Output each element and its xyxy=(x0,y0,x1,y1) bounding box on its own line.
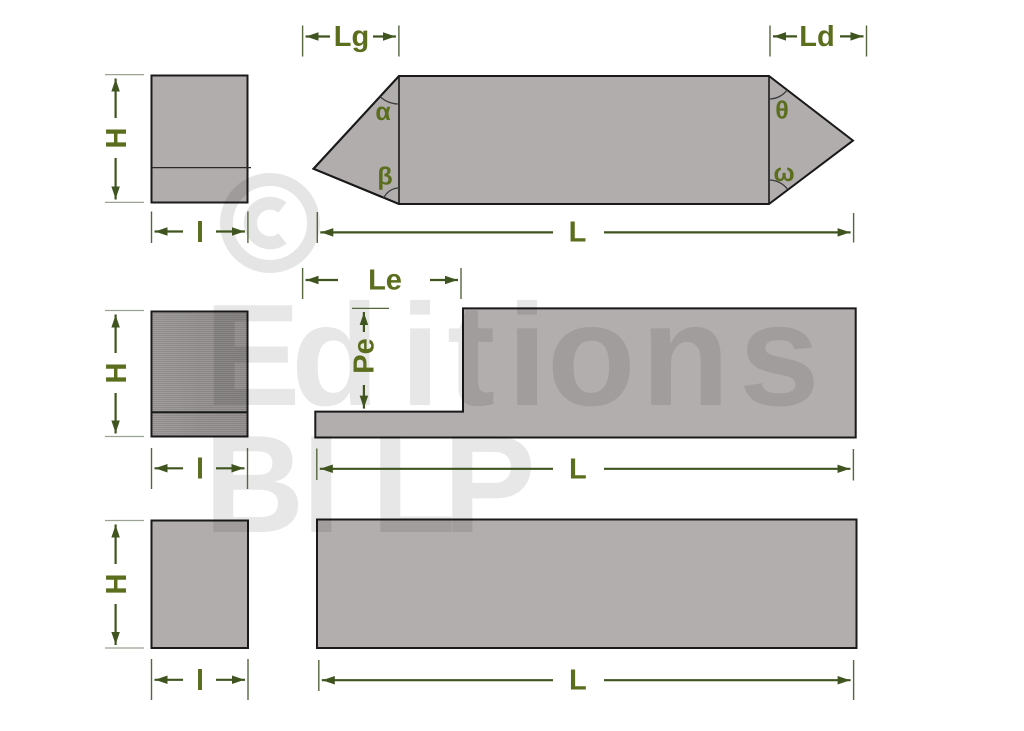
svg-text:l: l xyxy=(196,454,204,486)
svg-text:l: l xyxy=(196,217,204,249)
svg-text:θ: θ xyxy=(775,97,789,125)
svg-text:Lg: Lg xyxy=(334,21,369,53)
svg-text:Ld: Ld xyxy=(799,21,834,53)
svg-text:Pe: Pe xyxy=(349,338,381,373)
svg-text:H: H xyxy=(101,574,133,595)
svg-text:Le: Le xyxy=(368,265,402,297)
svg-text:α: α xyxy=(375,98,391,126)
svg-text:ω: ω xyxy=(773,159,794,187)
svg-text:L: L xyxy=(569,665,587,697)
svg-text:H: H xyxy=(101,363,133,384)
svg-text:H: H xyxy=(101,128,133,149)
svg-text:L: L xyxy=(569,217,587,249)
svg-text:l: l xyxy=(196,665,204,697)
svg-text:β: β xyxy=(377,163,392,191)
svg-text:L: L xyxy=(569,454,587,486)
